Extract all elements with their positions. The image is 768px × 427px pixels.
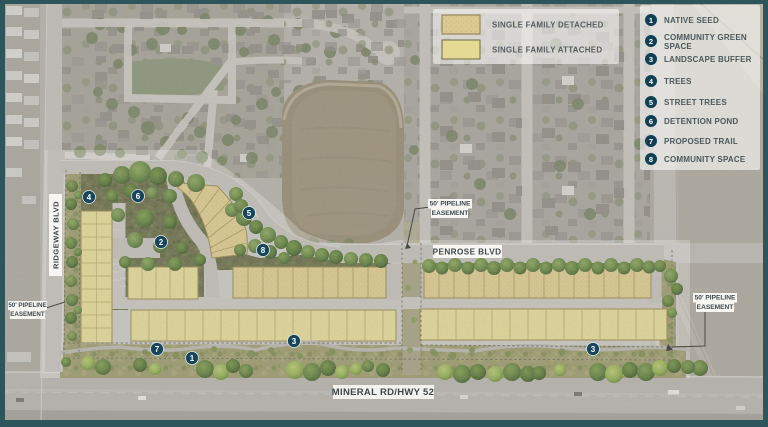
svg-text:8: 8: [649, 155, 653, 164]
svg-text:SINGLE FAMILY ATTACHED: SINGLE FAMILY ATTACHED: [492, 46, 602, 55]
svg-text:TREES: TREES: [664, 77, 692, 86]
svg-text:5: 5: [247, 209, 252, 218]
svg-text:EASEMENT: EASEMENT: [432, 210, 469, 217]
svg-text:7: 7: [649, 137, 653, 146]
svg-text:NATIVE SEED: NATIVE SEED: [664, 16, 719, 25]
svg-text:EASEMENT: EASEMENT: [697, 304, 734, 311]
svg-text:6: 6: [136, 192, 141, 201]
svg-text:1: 1: [190, 354, 195, 363]
svg-text:STREET TREES: STREET TREES: [664, 98, 727, 107]
svg-text:7: 7: [155, 345, 160, 354]
svg-text:1: 1: [649, 16, 653, 25]
svg-text:6: 6: [649, 117, 653, 126]
svg-text:8: 8: [261, 246, 266, 255]
svg-text:COMMUNITY GREEN: COMMUNITY GREEN: [664, 33, 747, 42]
svg-text:4: 4: [87, 193, 92, 202]
svg-text:PENROSE BLVD: PENROSE BLVD: [433, 248, 502, 257]
svg-text:3: 3: [591, 345, 596, 354]
svg-text:COMMUNITY SPACE: COMMUNITY SPACE: [664, 155, 746, 164]
svg-text:RIDGEWAY BLVD: RIDGEWAY BLVD: [52, 201, 61, 269]
svg-text:LANDSCAPE BUFFER: LANDSCAPE BUFFER: [664, 55, 752, 64]
svg-text:2: 2: [159, 238, 164, 247]
svg-text:3: 3: [292, 337, 297, 346]
svg-text:EASEMENT: EASEMENT: [10, 311, 45, 318]
svg-text:SPACE: SPACE: [664, 42, 692, 51]
svg-text:50' PIPELINE: 50' PIPELINE: [695, 295, 736, 302]
svg-text:50' PIPELINE: 50' PIPELINE: [430, 201, 471, 208]
svg-text:5: 5: [649, 98, 653, 107]
svg-text:DETENTION POND: DETENTION POND: [664, 117, 738, 126]
svg-text:SINGLE FAMILY DETACHED: SINGLE FAMILY DETACHED: [492, 21, 604, 30]
svg-text:50' PIPELINE: 50' PIPELINE: [8, 302, 46, 309]
svg-text:PROPOSED TRAIL: PROPOSED TRAIL: [664, 137, 738, 146]
svg-text:2: 2: [649, 37, 653, 46]
svg-text:MINERAL RD/HWY 52: MINERAL RD/HWY 52: [332, 387, 434, 398]
svg-text:3: 3: [649, 55, 653, 64]
